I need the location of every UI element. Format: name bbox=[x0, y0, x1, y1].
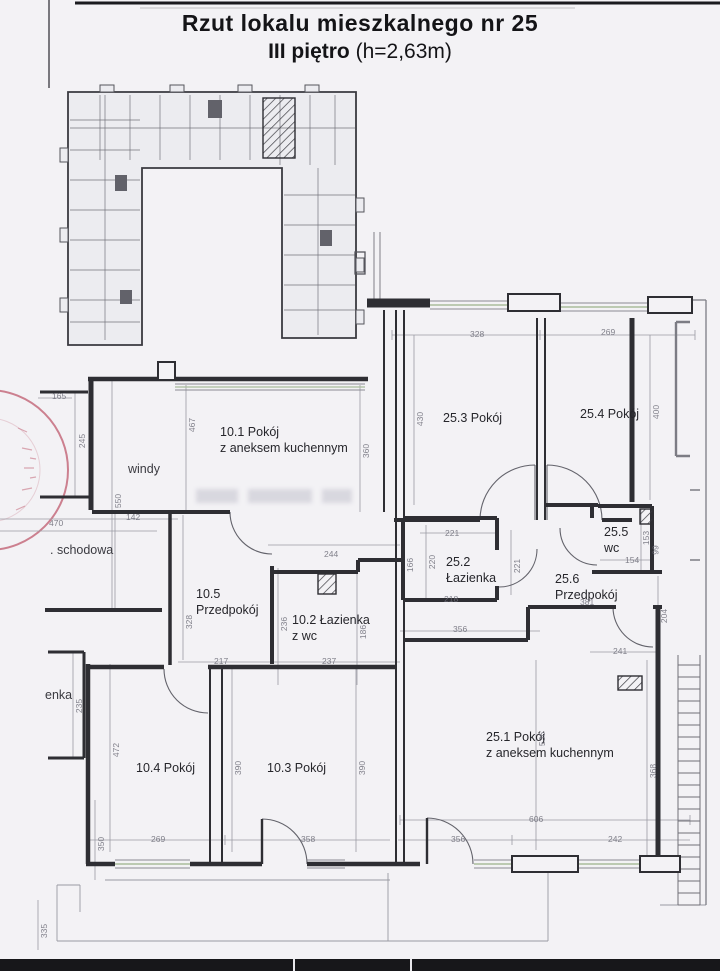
title-block-divider bbox=[293, 959, 295, 971]
dimension-label: 99 bbox=[651, 545, 661, 554]
room-label: 25.5wc bbox=[604, 524, 628, 556]
room-label: 25.1 Pokójz aneksem kuchennym bbox=[486, 729, 614, 761]
dimension-label: 217 bbox=[214, 656, 228, 666]
dimension-label: 221 bbox=[512, 559, 522, 573]
room-label: 10.1 Pokójz aneksem kuchennym bbox=[220, 424, 348, 456]
dimension-label: 328 bbox=[470, 329, 484, 339]
dimension-label: 269 bbox=[601, 327, 615, 337]
dimension-label: 269 bbox=[151, 834, 165, 844]
door-arcs bbox=[164, 465, 653, 864]
dimension-label: 154 bbox=[625, 555, 639, 565]
dimension-label: 221 bbox=[445, 528, 459, 538]
room-label: 25.4 Pokój bbox=[580, 406, 639, 422]
room-label: 25.2Łazienka bbox=[446, 554, 496, 586]
dimension-label: 153 bbox=[641, 531, 651, 545]
dimension-label: 350 bbox=[96, 837, 106, 851]
dimension-label: 358 bbox=[301, 834, 315, 844]
room-label: 10.4 Pokój bbox=[136, 760, 195, 776]
terrace-outlines bbox=[57, 873, 706, 941]
dimension-label: 237 bbox=[322, 656, 336, 666]
dimension-label: 244 bbox=[324, 549, 338, 559]
dimension-label: 360 bbox=[361, 444, 371, 458]
dimension-label: 245 bbox=[77, 434, 87, 448]
dimension-label: 390 bbox=[357, 761, 367, 775]
area-label: . schodowa bbox=[50, 543, 113, 557]
dimension-label: 204 bbox=[659, 609, 669, 623]
dimension-label: 390 bbox=[233, 761, 243, 775]
dimension-label: 236 bbox=[279, 617, 289, 631]
dimension-label: 381 bbox=[580, 597, 594, 607]
area-label: windy bbox=[128, 462, 160, 476]
dimension-label: 242 bbox=[608, 834, 622, 844]
dimension-label: 400 bbox=[651, 405, 661, 419]
room-label: 10.5Przedpokój bbox=[196, 586, 259, 618]
dimension-label: 328 bbox=[184, 615, 194, 629]
dimension-label: 606 bbox=[529, 814, 543, 824]
area-label: enka bbox=[45, 688, 72, 702]
dimension-label: 218 bbox=[444, 594, 458, 604]
title-block-strip bbox=[0, 959, 720, 971]
room-label: 10.3 Pokój bbox=[267, 760, 326, 776]
dimension-label: 356 bbox=[451, 834, 465, 844]
dimension-label: 368 bbox=[648, 764, 658, 778]
dimension-label: 356 bbox=[453, 624, 467, 634]
dimension-label: 186 bbox=[358, 625, 368, 639]
dimension-label: 470 bbox=[49, 518, 63, 528]
dimension-label: 220 bbox=[427, 555, 437, 569]
dimension-label: 142 bbox=[126, 512, 140, 522]
title-block-divider bbox=[410, 959, 412, 971]
dimension-label: 165 bbox=[52, 391, 66, 401]
dimension-label: 550 bbox=[113, 494, 123, 508]
dimension-label: 472 bbox=[111, 743, 121, 757]
balcony-railing bbox=[678, 655, 700, 905]
dimension-label: 467 bbox=[187, 418, 197, 432]
dimension-label: 166 bbox=[405, 558, 415, 572]
dimension-label: 536 bbox=[537, 732, 547, 746]
room-label: 25.3 Pokój bbox=[443, 410, 502, 426]
watermark-smudge bbox=[196, 486, 381, 506]
dimension-label: 430 bbox=[415, 412, 425, 426]
dimension-label: 235 bbox=[74, 699, 84, 713]
scanned-floorplan-page: { "title": { "line1": "Rzut lokalu miesz… bbox=[0, 0, 720, 971]
dimension-label: 335 bbox=[39, 924, 49, 938]
dimension-label: 241 bbox=[613, 646, 627, 656]
